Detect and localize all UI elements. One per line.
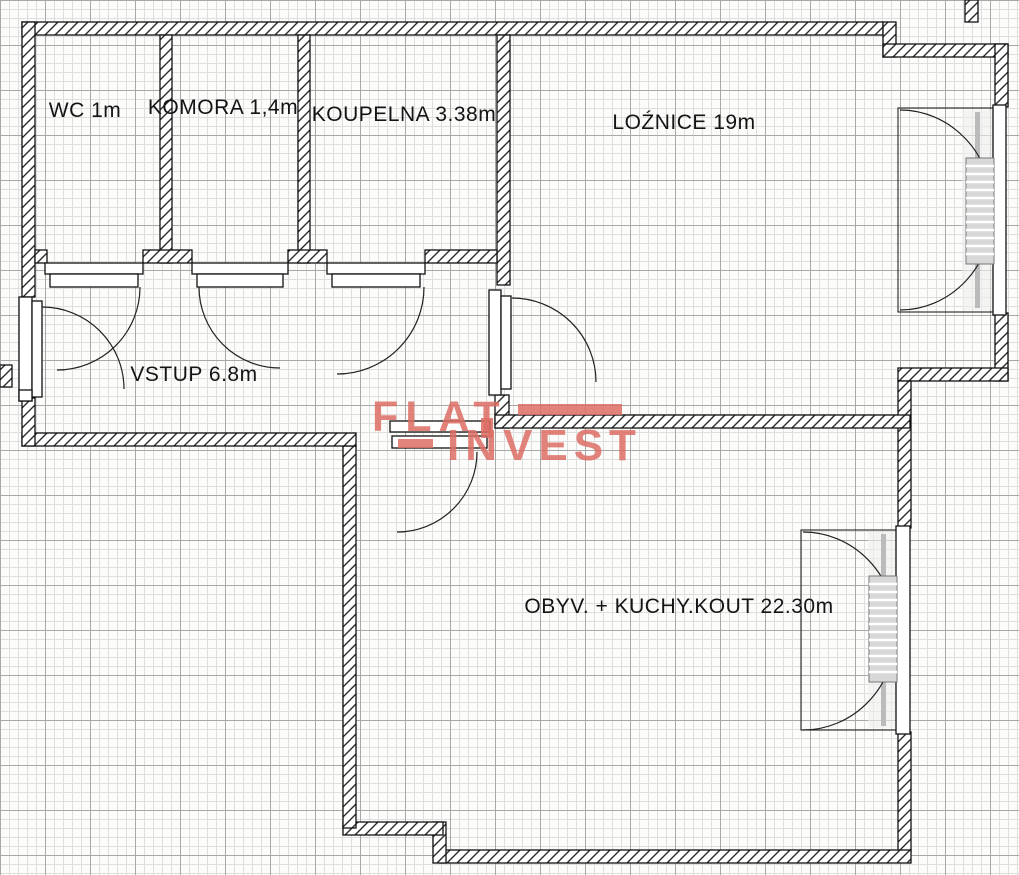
wall-hall-seg-d	[425, 250, 497, 263]
radiator-obyv	[869, 576, 897, 682]
room-label-komora: KOMORA 1,4m	[148, 96, 298, 120]
radiator-loznice	[966, 158, 994, 264]
room-label-vstup: VSTUP 6.8m	[130, 363, 257, 387]
logo-dash-top	[518, 404, 622, 415]
wall-obyv-left	[343, 446, 356, 828]
wall-stub-top	[965, 0, 978, 22]
wall-hall-seg-c	[288, 250, 327, 263]
wall-koupelna-loznice	[497, 35, 510, 285]
wall-upper-right	[883, 44, 1008, 57]
wall-komora-koupelna	[298, 35, 310, 263]
window-frame-outer	[993, 105, 1006, 315]
wall-bottom-left	[343, 822, 443, 835]
floorplan-canvas: WC 1m KOMORA 1,4m KOUPELNA 3.38m LOŹNICE…	[0, 0, 1019, 875]
wall-loznice-bottom-ext	[898, 368, 1008, 381]
wall-vstup-bottom	[22, 433, 356, 446]
wall-left-upper	[22, 22, 35, 297]
window-frame-outer	[896, 526, 910, 734]
wall-obyv-right-upper	[898, 381, 911, 528]
wall-hall-seg-a	[35, 250, 47, 263]
logo-dash-bottom	[398, 439, 433, 448]
wall-right-upper	[995, 44, 1008, 107]
wall-left-lower	[22, 398, 35, 446]
room-label-wc: WC 1m	[49, 99, 122, 123]
wall-top	[22, 22, 883, 35]
wall-obyv-right-lower	[898, 732, 911, 852]
room-label-koupelna: KOUPELNA 3.38m	[312, 103, 496, 127]
wall-hall-seg-b	[143, 250, 192, 263]
room-label-loznice: LOŹNICE 19m	[612, 111, 755, 135]
logo-invest-text: INVEST	[447, 424, 642, 468]
wall-wc-komora	[160, 35, 172, 263]
wall-stub-left	[0, 365, 12, 387]
room-label-obyv: OBYV. + KUCHY.KOUT 22.30m	[524, 595, 833, 619]
wall-bottom-right	[440, 850, 911, 863]
